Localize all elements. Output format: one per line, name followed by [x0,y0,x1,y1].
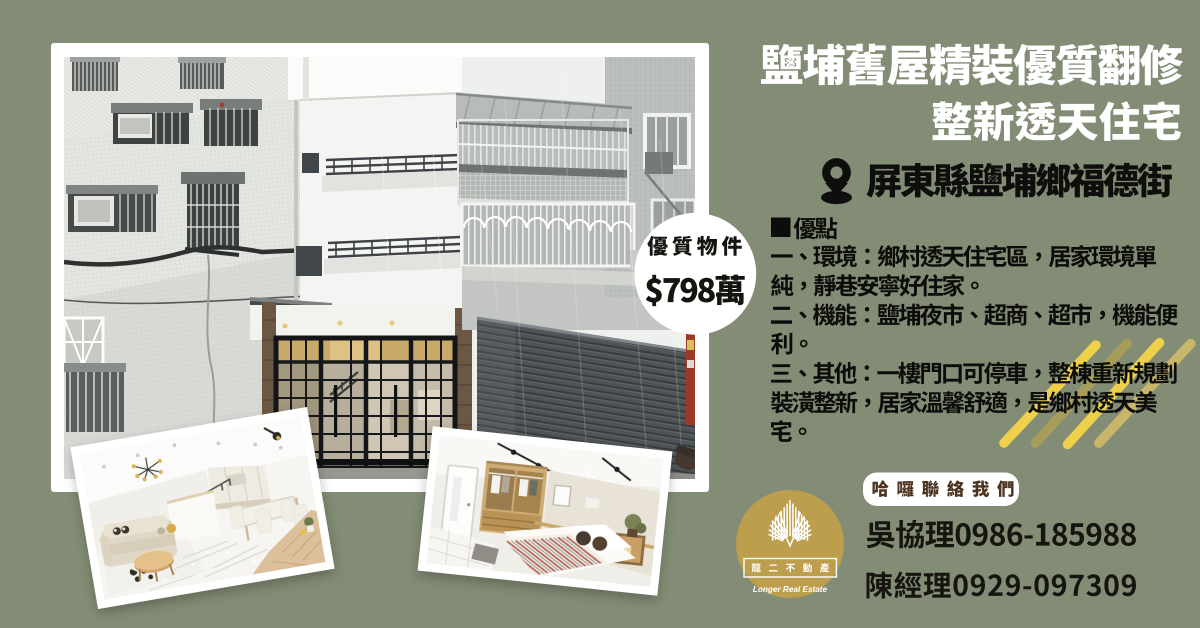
svg-text:Longer Real Estate: Longer Real Estate [753,585,828,594]
